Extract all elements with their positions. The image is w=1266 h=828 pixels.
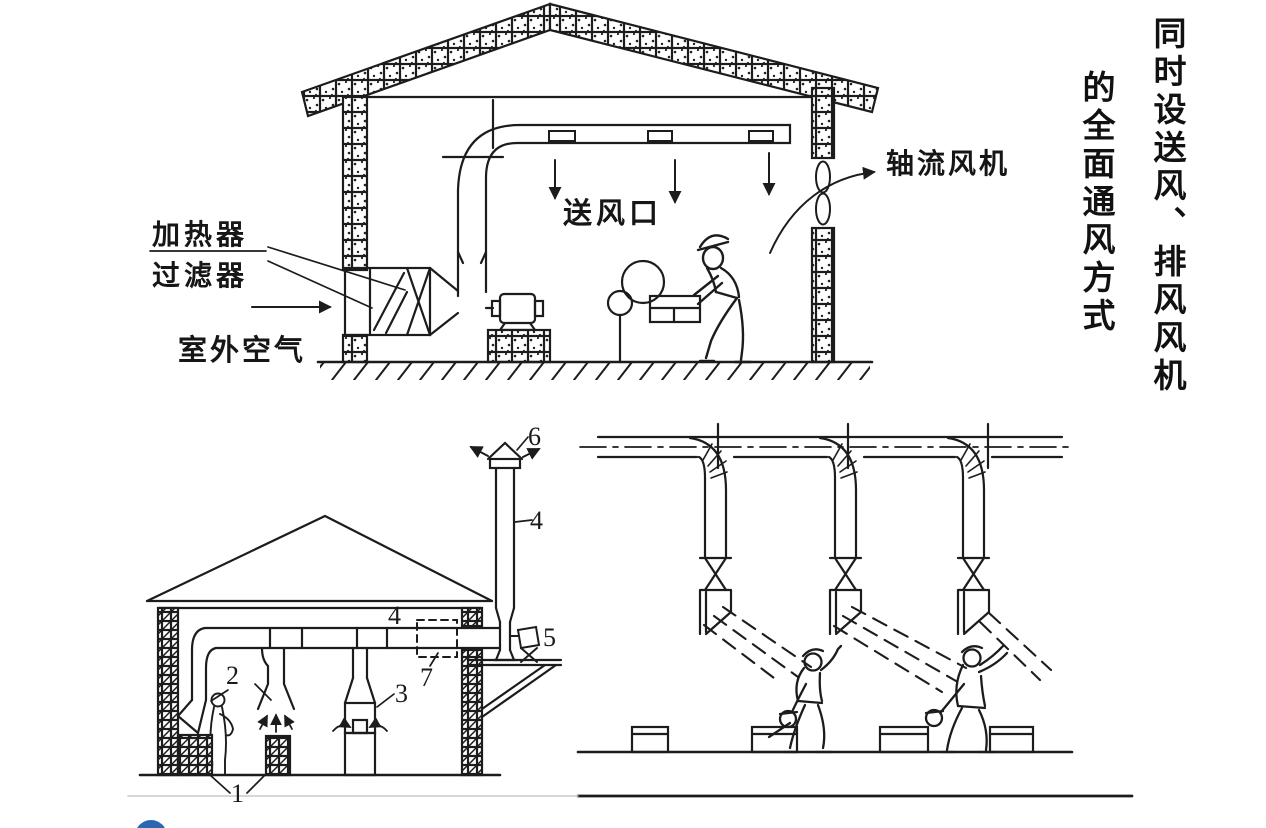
shoveling-worker <box>926 646 1007 752</box>
grinder-machine <box>608 261 700 362</box>
callout-2: 2 <box>226 661 239 691</box>
callout-1: 1 <box>231 779 244 809</box>
callout-leaders <box>210 437 532 793</box>
supply-outlet-label: 送风口 <box>563 190 662 232</box>
callout-5: 5 <box>543 623 556 653</box>
worker-figure <box>694 235 751 362</box>
outdoor-air-label: 室外空气 <box>178 327 306 369</box>
material-boxes <box>632 727 1033 752</box>
fan-motor <box>486 294 550 362</box>
supply-drop <box>690 438 731 634</box>
callout-3: 3 <box>395 679 408 709</box>
logo-icon <box>135 820 167 828</box>
supply-drop <box>948 438 989 634</box>
heater-label: 加热器 <box>152 213 248 253</box>
top-building <box>150 4 878 380</box>
axial-fan-label: 轴流风机 <box>886 142 1010 182</box>
side-hood <box>178 628 216 733</box>
callout-6: 6 <box>528 422 541 452</box>
exhaust-fan <box>510 627 539 662</box>
gable-roof <box>302 4 878 116</box>
callout-4-duct: 4 <box>388 601 401 631</box>
callout-4-stack: 4 <box>530 506 543 536</box>
exhaust-duct <box>205 628 500 648</box>
axial-fan-icon <box>812 158 834 228</box>
diagram-page: 同时设送风、排风风机 的全面通风方式 加热器 过滤器 室外空气 送风口 轴流风机… <box>0 0 1266 828</box>
air-outlets <box>549 131 773 141</box>
hipped-roof <box>147 516 492 608</box>
ground <box>318 362 872 380</box>
dashed-fan-box <box>417 620 457 657</box>
filter-label: 过滤器 <box>152 254 248 294</box>
page-title-column-right: 同时设送风、排风风机 <box>1143 16 1191 396</box>
enclosing-hood <box>333 648 387 775</box>
air-shower-diagram <box>578 424 1132 796</box>
page-title-column-left: 的全面通风方式 <box>1072 70 1120 336</box>
bottom-left-building <box>140 437 561 793</box>
supply-drop <box>820 438 861 634</box>
callout-7: 7 <box>420 663 433 693</box>
main-supply-duct <box>580 424 1075 468</box>
standing-person <box>210 694 233 776</box>
shoveling-worker <box>769 646 841 752</box>
